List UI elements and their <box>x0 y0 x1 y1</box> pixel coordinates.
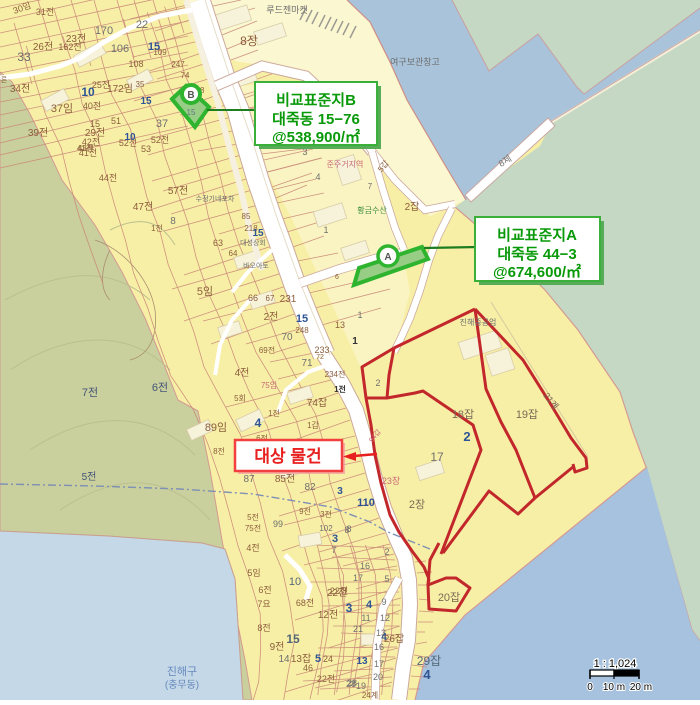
svg-text:47전: 47전 <box>133 201 153 213</box>
svg-text:6: 6 <box>335 274 339 281</box>
svg-text:B: B <box>187 90 194 101</box>
svg-text:13: 13 <box>335 320 345 330</box>
svg-text:87: 87 <box>243 474 255 485</box>
svg-text:8: 8 <box>170 216 176 227</box>
svg-text:6전: 6전 <box>152 381 168 394</box>
svg-text:57전: 57전 <box>168 185 188 197</box>
svg-text:17: 17 <box>430 450 444 464</box>
svg-text:비교표준지A: 비교표준지A <box>497 227 577 244</box>
svg-text:110: 110 <box>357 497 375 509</box>
svg-text:20: 20 <box>373 672 383 682</box>
svg-text:0: 0 <box>587 682 593 693</box>
svg-text:5회: 5회 <box>234 394 246 403</box>
svg-text:34전: 34전 <box>10 83 30 95</box>
svg-text:109: 109 <box>153 48 167 57</box>
svg-text:21: 21 <box>353 624 363 634</box>
svg-text:수정기네포차: 수정기네포차 <box>196 194 235 203</box>
svg-text:대상 물건: 대상 물건 <box>254 447 321 466</box>
svg-text:13: 13 <box>356 656 368 667</box>
svg-text:64: 64 <box>229 249 238 258</box>
svg-text:황금수산: 황금수산 <box>357 205 387 215</box>
svg-text:2전: 2전 <box>264 311 279 323</box>
svg-text:102: 102 <box>319 524 333 533</box>
svg-text:52전: 52전 <box>151 135 169 145</box>
svg-text:172임: 172임 <box>107 82 133 95</box>
svg-text:8장: 8장 <box>240 34 258 48</box>
svg-text:85전: 85전 <box>275 473 295 485</box>
svg-text:85: 85 <box>242 212 251 221</box>
svg-text:1갑: 1갑 <box>307 420 319 430</box>
svg-text:3: 3 <box>337 486 343 497</box>
svg-text:3: 3 <box>332 533 338 545</box>
svg-text:4: 4 <box>255 416 262 430</box>
svg-text:(충무동): (충무동) <box>165 679 199 691</box>
svg-text:15: 15 <box>187 108 196 117</box>
svg-text:63: 63 <box>213 238 223 248</box>
svg-text:6전: 6전 <box>258 585 271 595</box>
svg-text:14: 14 <box>278 654 290 665</box>
svg-text:37임: 37임 <box>51 102 73 115</box>
svg-text:20 m: 20 m <box>630 682 652 693</box>
svg-text:9전: 9전 <box>299 506 311 516</box>
svg-text:44전: 44전 <box>99 173 117 183</box>
svg-text:10: 10 <box>81 85 95 99</box>
svg-text:7: 7 <box>331 545 336 555</box>
svg-text:진해중공업: 진해중공업 <box>460 317 497 327</box>
svg-text:29잡: 29잡 <box>417 654 441 668</box>
svg-text:170: 170 <box>95 25 113 37</box>
svg-text:68전: 68전 <box>296 598 314 608</box>
svg-text:대성상회: 대성상회 <box>240 238 266 247</box>
svg-text:16: 16 <box>360 561 370 571</box>
svg-text:15: 15 <box>252 228 264 239</box>
svg-text:51: 51 <box>111 116 121 126</box>
svg-text:19: 19 <box>356 681 366 691</box>
svg-text:9: 9 <box>381 597 386 607</box>
svg-text:2: 2 <box>463 429 470 444</box>
svg-text:39전: 39전 <box>28 127 48 139</box>
svg-text:8: 8 <box>346 524 351 534</box>
svg-text:12: 12 <box>380 613 390 623</box>
svg-text:5론: 5론 <box>0 76 8 84</box>
svg-text:17: 17 <box>374 659 384 669</box>
svg-text:82: 82 <box>304 482 316 493</box>
svg-text:바오아토: 바오아토 <box>243 261 269 270</box>
svg-text:7: 7 <box>368 182 373 191</box>
svg-text:A: A <box>384 252 391 263</box>
svg-text:3: 3 <box>346 601 353 615</box>
svg-text:74잡: 74잡 <box>307 397 327 409</box>
svg-text:진해구: 진해구 <box>167 664 197 678</box>
svg-text:231: 231 <box>280 294 297 305</box>
svg-text:2잡: 2잡 <box>405 201 420 213</box>
svg-text:준주거지역: 준주거지역 <box>327 159 364 169</box>
svg-text:대죽동 44−3: 대죽동 44−3 <box>497 246 576 263</box>
svg-text:31전: 31전 <box>36 7 54 17</box>
svg-text:53: 53 <box>141 144 151 154</box>
svg-text:@538,900/㎡: @538,900/㎡ <box>272 128 360 146</box>
svg-text:19잡: 19잡 <box>516 408 538 421</box>
svg-text:67: 67 <box>266 294 275 303</box>
svg-text:1전: 1전 <box>151 223 163 233</box>
svg-text:5: 5 <box>384 574 389 584</box>
svg-text:99: 99 <box>273 519 283 529</box>
svg-text:2: 2 <box>384 547 389 557</box>
svg-text:40전: 40전 <box>83 101 101 111</box>
svg-text:72: 72 <box>316 354 324 361</box>
svg-text:5임: 5임 <box>247 567 260 578</box>
svg-text:7요: 7요 <box>257 599 270 609</box>
svg-text:18잡: 18잡 <box>452 408 474 421</box>
svg-text:26잡: 26잡 <box>384 633 404 645</box>
svg-text:24: 24 <box>323 654 333 664</box>
svg-text:11: 11 <box>361 613 370 623</box>
svg-text:22전: 22전 <box>330 586 348 596</box>
svg-text:3전: 3전 <box>320 509 332 519</box>
svg-text:@674,600/㎡: @674,600/㎡ <box>493 263 581 281</box>
svg-text:여구보관창고: 여구보관창고 <box>390 56 440 67</box>
svg-text:15: 15 <box>286 632 300 646</box>
svg-text:89임: 89임 <box>205 421 227 434</box>
svg-text:5: 5 <box>315 653 321 665</box>
svg-text:75전: 75전 <box>245 523 261 533</box>
svg-text:46: 46 <box>303 663 313 673</box>
svg-text:10: 10 <box>289 576 301 588</box>
svg-text:1: 1 <box>352 336 358 347</box>
svg-text:108: 108 <box>128 59 143 69</box>
svg-text:10 m: 10 m <box>603 682 625 693</box>
svg-text:루드젠마켓: 루드젠마켓 <box>266 5 307 15</box>
svg-text:35: 35 <box>136 80 145 89</box>
svg-text:69전: 69전 <box>259 345 275 355</box>
svg-text:15: 15 <box>296 313 308 325</box>
svg-text:1전: 1전 <box>334 384 346 394</box>
svg-text:5전: 5전 <box>82 471 97 483</box>
svg-text:23장: 23장 <box>382 476 400 486</box>
svg-text:43전: 43전 <box>78 143 94 153</box>
svg-text:33: 33 <box>17 50 31 64</box>
svg-text:162전: 162전 <box>58 42 81 52</box>
svg-text:5전: 5전 <box>247 512 259 522</box>
svg-text:66: 66 <box>248 293 258 303</box>
svg-text:7전: 7전 <box>82 386 98 399</box>
svg-text:4전: 4전 <box>235 367 250 379</box>
svg-text:70: 70 <box>281 332 293 343</box>
svg-text:12전: 12전 <box>318 609 338 621</box>
svg-text:24계: 24계 <box>362 690 378 700</box>
svg-text:15: 15 <box>90 119 100 129</box>
svg-text:1: 1 <box>323 225 328 235</box>
svg-text:8전: 8전 <box>257 623 270 633</box>
svg-text:8전: 8전 <box>213 446 225 456</box>
svg-text:74: 74 <box>181 71 190 80</box>
svg-text:37: 37 <box>156 118 168 130</box>
svg-text:9전: 9전 <box>270 641 285 653</box>
svg-text:1전: 1전 <box>268 408 280 418</box>
svg-text:1: 1 <box>357 310 362 320</box>
svg-text:248: 248 <box>295 326 309 335</box>
svg-text:26전: 26전 <box>33 41 53 53</box>
svg-text:5임: 5임 <box>197 285 213 298</box>
svg-text:22전: 22전 <box>317 674 335 684</box>
svg-text:20잡: 20잡 <box>438 591 460 604</box>
svg-text:28: 28 <box>347 678 357 688</box>
svg-text:4: 4 <box>423 667 431 682</box>
svg-text:16: 16 <box>374 642 384 652</box>
svg-text:234전: 234전 <box>325 369 346 379</box>
svg-text:2: 2 <box>375 378 380 388</box>
svg-text:22: 22 <box>136 19 148 31</box>
svg-text:4: 4 <box>366 599 373 611</box>
svg-text:비교표준지B: 비교표준지B <box>276 92 356 109</box>
svg-text:1 : 1,024: 1 : 1,024 <box>594 658 637 670</box>
svg-text:10: 10 <box>124 132 136 143</box>
svg-text:4전: 4전 <box>246 543 259 553</box>
svg-text:71: 71 <box>301 358 313 369</box>
svg-text:75임: 75임 <box>261 381 277 390</box>
svg-text:17: 17 <box>353 573 363 583</box>
svg-text:4: 4 <box>315 172 320 182</box>
svg-text:106: 106 <box>111 43 129 55</box>
svg-text:247: 247 <box>171 60 185 69</box>
svg-text:15: 15 <box>140 96 152 107</box>
svg-text:대죽동 15−76: 대죽동 15−76 <box>272 111 360 128</box>
svg-text:2장: 2장 <box>409 498 425 511</box>
